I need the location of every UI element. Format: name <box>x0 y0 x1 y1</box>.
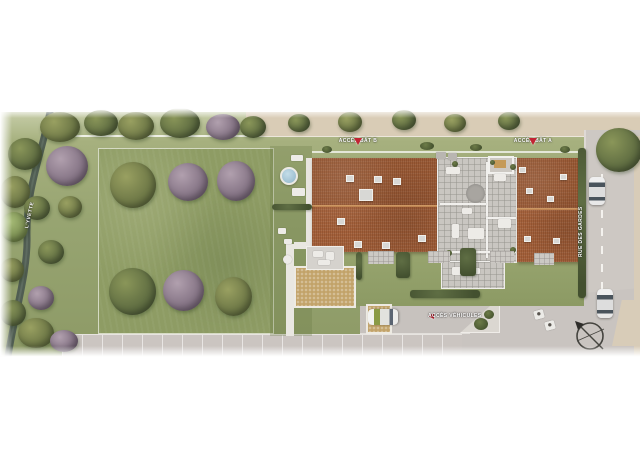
label-rue-des-gardes: RUE DES GARDES <box>578 200 590 264</box>
terrace-partition <box>440 203 486 205</box>
building-a-roof <box>517 158 583 262</box>
render-fade <box>0 106 640 118</box>
site-plan: ACCÈS BÂT B ACCÈS BÂT A ACCÈS VÉHICULES … <box>0 0 640 470</box>
roof-upper-slope <box>312 158 438 205</box>
building-boundary-line <box>312 151 584 153</box>
red-arrow-down-icon <box>529 138 537 145</box>
building-b-roof <box>312 158 438 252</box>
roof-upper-slope <box>517 158 583 208</box>
pergola-furniture <box>494 160 506 168</box>
roof-ridge <box>312 205 438 207</box>
gravel-terrace-small <box>366 304 392 334</box>
garden-path-vertical <box>286 244 294 336</box>
roof-ridge <box>517 208 583 210</box>
building-b-balcony <box>306 246 344 270</box>
main-lawn <box>98 148 274 334</box>
terrace-partition <box>486 217 516 219</box>
render-fade <box>0 112 12 356</box>
render-fade <box>0 346 640 360</box>
red-arrow-down-icon <box>354 138 362 145</box>
lower-terrace <box>442 262 504 288</box>
road-center-line <box>601 138 603 290</box>
terrace-partition <box>440 251 516 253</box>
acces-vehicules-text: ACCÈS VÉHICULES <box>428 313 482 319</box>
north-boundary-line <box>70 135 256 137</box>
terrace-partition <box>486 162 488 258</box>
gravel-terrace-large <box>294 266 356 308</box>
